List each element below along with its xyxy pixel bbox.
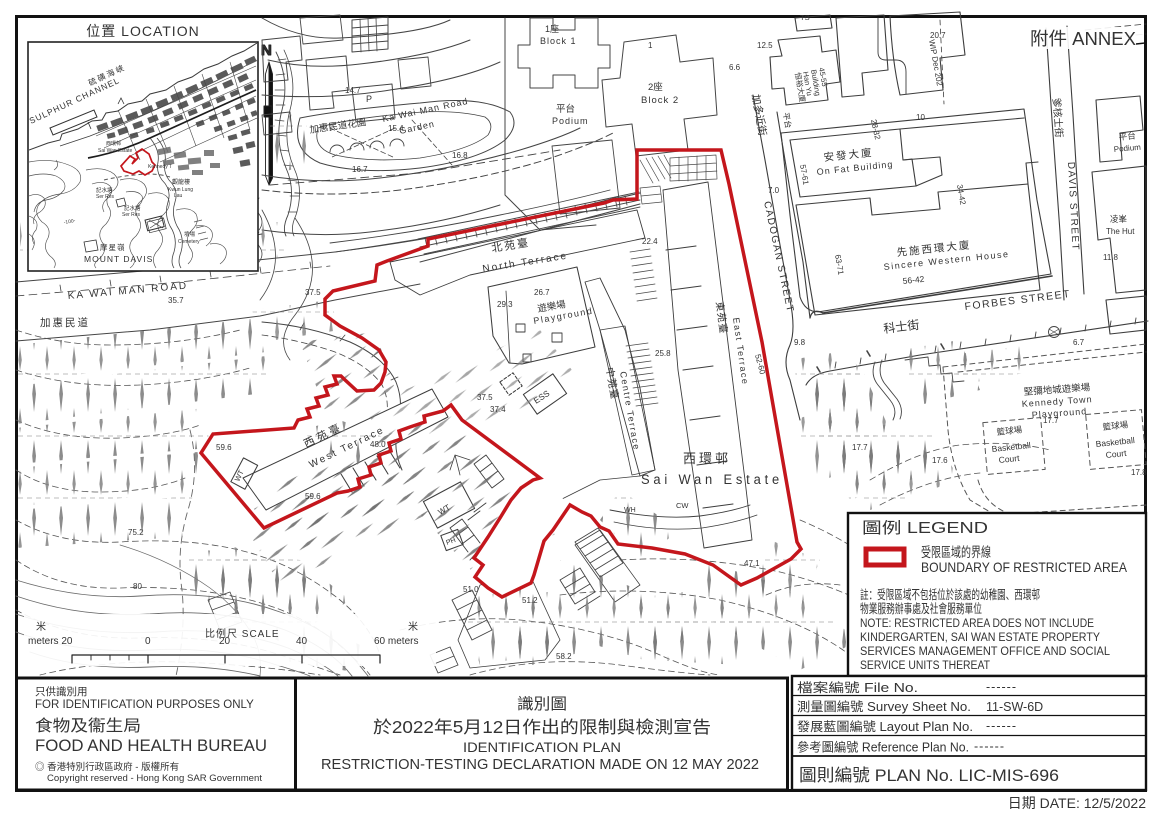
svg-text:記水塘: 記水塘 bbox=[96, 186, 113, 194]
svg-text:16.8: 16.8 bbox=[452, 151, 468, 160]
svg-text:17.8: 17.8 bbox=[1131, 468, 1147, 477]
svg-text:47.1: 47.1 bbox=[744, 559, 760, 568]
svg-text:------: ------ bbox=[986, 680, 1017, 694]
svg-text:Sai Wan Estate: Sai Wan Estate bbox=[98, 148, 132, 154]
svg-text:平台: 平台 bbox=[556, 103, 575, 115]
svg-text:6.7: 6.7 bbox=[1073, 338, 1085, 347]
svg-text:平台: 平台 bbox=[1118, 131, 1136, 142]
svg-text:BOUNDARY OF RESTRICTED AREA: BOUNDARY OF RESTRICTED AREA bbox=[921, 560, 1128, 575]
svg-text:記水塘: 記水塘 bbox=[124, 204, 141, 212]
svg-text:12.5: 12.5 bbox=[757, 41, 773, 50]
svg-text:TS: TS bbox=[800, 13, 810, 22]
svg-text:------: ------ bbox=[974, 740, 1005, 754]
svg-text:51.2: 51.2 bbox=[522, 596, 538, 605]
svg-text:附件 ANNEX: 附件 ANNEX bbox=[1030, 29, 1136, 49]
svg-text:11-SW-6D: 11-SW-6D bbox=[986, 700, 1043, 714]
svg-text:物業服務辦事處及社會服務單位: 物業服務辦事處及社會服務單位 bbox=[860, 601, 982, 616]
svg-text:37.5: 37.5 bbox=[477, 393, 493, 402]
svg-text:FOR IDENTIFICATION PURPOSES ON: FOR IDENTIFICATION PURPOSES ONLY bbox=[35, 699, 254, 711]
svg-text:37.4: 37.4 bbox=[490, 405, 506, 414]
svg-text:日期 DATE: 12/5/2022: 日期 DATE: 12/5/2022 bbox=[1008, 795, 1146, 811]
svg-text:Kennedy T: Kennedy T bbox=[148, 164, 172, 170]
svg-text:Cemetery: Cemetery bbox=[178, 239, 200, 245]
svg-text:凌峯: 凌峯 bbox=[1110, 214, 1128, 224]
svg-text:59.6: 59.6 bbox=[216, 443, 232, 452]
svg-text:Ser Res: Ser Res bbox=[96, 194, 115, 200]
svg-text:西環邨: 西環邨 bbox=[106, 140, 121, 147]
svg-text:Sai Wan Estate: Sai Wan Estate bbox=[641, 472, 783, 487]
svg-text:IDENTIFICATION PLAN: IDENTIFICATION PLAN bbox=[463, 740, 621, 755]
svg-text:17.7: 17.7 bbox=[1043, 416, 1059, 425]
svg-text:摩星嶺: 摩星嶺 bbox=[100, 242, 126, 252]
svg-text:識別圖: 識別圖 bbox=[517, 696, 567, 713]
svg-text:Copyright reserved - Hong Kong: Copyright reserved - Hong Kong SAR Gover… bbox=[47, 773, 262, 784]
svg-text:The Hut: The Hut bbox=[1106, 227, 1135, 236]
svg-text:10: 10 bbox=[916, 113, 925, 122]
svg-text:加惠民道: 加惠民道 bbox=[40, 316, 90, 329]
svg-text:西環邨: 西環邨 bbox=[683, 451, 731, 466]
svg-text:只供識別用: 只供識別用 bbox=[35, 685, 88, 698]
svg-text:參考圖編號 Reference Plan No.: 參考圖編號 Reference Plan No. bbox=[797, 740, 969, 755]
svg-text:2座: 2座 bbox=[648, 81, 663, 93]
svg-text:WH: WH bbox=[624, 507, 636, 514]
svg-text:26.7: 26.7 bbox=[534, 288, 550, 297]
svg-text:20.7: 20.7 bbox=[930, 31, 946, 40]
svg-text:1: 1 bbox=[648, 41, 653, 50]
svg-text:註：受限區域不包括位於該處的幼稚園、西環邨: 註：受限區域不包括位於該處的幼稚園、西環邨 bbox=[860, 587, 1040, 602]
svg-text:11.8: 11.8 bbox=[1103, 253, 1119, 262]
svg-text:0: 0 bbox=[145, 636, 151, 647]
svg-text:檔案編號 File No.: 檔案編號 File No. bbox=[797, 680, 918, 695]
svg-text:RESTRICTION-TESTING DECLARATIO: RESTRICTION-TESTING DECLARATION MADE ON … bbox=[321, 757, 759, 773]
svg-text:Block 2: Block 2 bbox=[641, 95, 679, 106]
svg-text:59.6: 59.6 bbox=[305, 492, 321, 501]
svg-text:35.7: 35.7 bbox=[168, 296, 184, 305]
svg-text:測量圖編號 Survey Sheet No.: 測量圖編號 Survey Sheet No. bbox=[797, 699, 971, 714]
svg-text:Block 1: Block 1 bbox=[540, 36, 577, 46]
svg-text:受限區域的界線: 受限區域的界線 bbox=[921, 545, 991, 560]
svg-text:圖例 LEGEND: 圖例 LEGEND bbox=[862, 519, 988, 537]
svg-text:位置 LOCATION: 位置 LOCATION bbox=[86, 23, 199, 39]
svg-text:40: 40 bbox=[296, 636, 308, 647]
svg-text:1座: 1座 bbox=[545, 23, 559, 34]
svg-text:P: P bbox=[366, 94, 372, 104]
svg-text:60 meters: 60 meters bbox=[374, 636, 418, 647]
svg-text:Ser Res: Ser Res bbox=[122, 212, 141, 218]
svg-text:SERVICE UNITS THEREAT: SERVICE UNITS THEREAT bbox=[860, 658, 990, 672]
svg-text:◎ 香港特別行政區政府 - 版權所有: ◎ 香港特別行政區政府 - 版權所有 bbox=[35, 761, 179, 773]
svg-text:15.4: 15.4 bbox=[388, 124, 404, 133]
svg-text:80: 80 bbox=[133, 582, 142, 591]
svg-text:25.8: 25.8 bbox=[655, 349, 671, 358]
svg-text:37.5: 37.5 bbox=[305, 288, 321, 297]
svg-text:食物及衞生局: 食物及衞生局 bbox=[35, 717, 141, 735]
svg-text:29.3: 29.3 bbox=[497, 300, 513, 309]
svg-text:米: 米 bbox=[36, 620, 46, 633]
svg-text:58.2: 58.2 bbox=[556, 652, 572, 661]
svg-text:觀龍樓: 觀龍樓 bbox=[172, 178, 190, 186]
svg-text:SERVICES MANAGEMENT OFFICE AND: SERVICES MANAGEMENT OFFICE AND SOCIAL bbox=[860, 644, 1110, 658]
svg-text:Podium: Podium bbox=[552, 116, 589, 126]
svg-text:22.4: 22.4 bbox=[642, 237, 658, 246]
svg-text:墳場: 墳場 bbox=[184, 230, 196, 238]
svg-text:Lau: Lau bbox=[174, 193, 183, 199]
svg-text:NOTE: RESTRICTED AREA DOES NOT: NOTE: RESTRICTED AREA DOES NOT INCLUDE bbox=[860, 616, 1094, 630]
svg-text:FOOD AND HEALTH BUREAU: FOOD AND HEALTH BUREAU bbox=[35, 736, 267, 755]
svg-text:6.6: 6.6 bbox=[729, 63, 741, 72]
svg-text:9.8: 9.8 bbox=[794, 338, 806, 347]
svg-text:KINDERGARTEN, SAI WAN ESTATE P: KINDERGARTEN, SAI WAN ESTATE PROPERTY bbox=[860, 630, 1100, 644]
svg-text:16.7: 16.7 bbox=[352, 165, 368, 174]
svg-text:51.0: 51.0 bbox=[463, 585, 479, 594]
svg-text:MOUNT DAVIS: MOUNT DAVIS bbox=[84, 254, 153, 264]
svg-text:比例尺 SCALE: 比例尺 SCALE bbox=[205, 627, 280, 640]
svg-text:圖則編號 PLAN No. LIC-MIS-696: 圖則編號 PLAN No. LIC-MIS-696 bbox=[799, 766, 1059, 785]
svg-text:CW: CW bbox=[676, 501, 689, 510]
svg-text:米: 米 bbox=[408, 620, 418, 633]
svg-text:於2022年5月12日作出的限制與檢測宣告: 於2022年5月12日作出的限制與檢測宣告 bbox=[373, 717, 711, 737]
svg-text:7.0: 7.0 bbox=[768, 186, 780, 195]
svg-text:發展藍圖編號 Layout Plan No.: 發展藍圖編號 Layout Plan No. bbox=[797, 719, 973, 734]
svg-text:------: ------ bbox=[986, 719, 1017, 733]
svg-text:meters 20: meters 20 bbox=[28, 636, 73, 647]
